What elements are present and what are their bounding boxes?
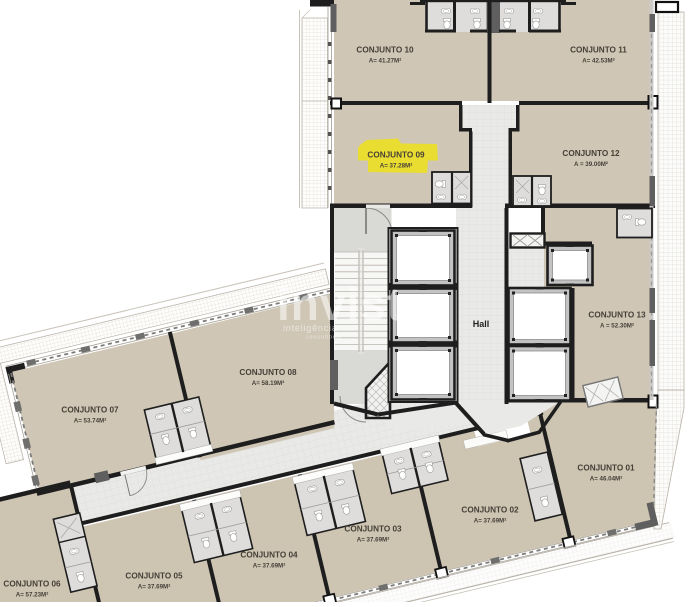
svg-text:A= 58.19M²: A= 58.19M² (252, 380, 285, 387)
svg-text:A= 42.53M²: A= 42.53M² (582, 58, 615, 65)
svg-text:CONJUNTO 03: CONJUNTO 03 (344, 525, 402, 534)
svg-text:A= 37.69M²: A= 37.69M² (474, 518, 507, 525)
svg-text:CONJUNTO 11: CONJUNTO 11 (570, 46, 627, 55)
svg-text:CONJUNTO 09: CONJUNTO 09 (367, 151, 425, 160)
svg-text:A= 57.23M²: A= 57.23M² (16, 592, 49, 599)
svg-text:inteligência: inteligência (283, 323, 338, 333)
svg-text:A= 41.27M²: A= 41.27M² (369, 58, 402, 65)
svg-text:A = 52.30M²: A = 52.30M² (600, 323, 634, 330)
svg-text:CONJUNTO 12: CONJUNTO 12 (562, 149, 620, 158)
svg-text:CONJUNTO 10: CONJUNTO 10 (356, 46, 414, 55)
svg-text:A= 37.69M²: A= 37.69M² (253, 563, 286, 570)
svg-text:CONJUNTO 06: CONJUNTO 06 (3, 580, 61, 589)
svg-text:consultoria: consultoria (306, 335, 342, 341)
svg-text:CONJUNTO 04: CONJUNTO 04 (240, 551, 298, 560)
svg-text:CONJUNTO 07: CONJUNTO 07 (61, 406, 119, 415)
svg-text:A= 37.28M²: A= 37.28M² (380, 163, 413, 170)
svg-text:A= 53.74M²: A= 53.74M² (74, 418, 107, 425)
svg-text:CONJUNTO 02: CONJUNTO 02 (461, 506, 519, 515)
svg-text:A = 39.00M²: A = 39.00M² (574, 161, 608, 168)
svg-text:Hall: Hall (473, 319, 490, 329)
svg-text:A= 37.69M²: A= 37.69M² (357, 537, 390, 544)
svg-text:A= 46.04M²: A= 46.04M² (590, 476, 623, 483)
svg-text:A= 37.69M²: A= 37.69M² (138, 584, 171, 591)
svg-text:CONJUNTO 01: CONJUNTO 01 (577, 464, 635, 473)
svg-text:CONJUNTO 08: CONJUNTO 08 (239, 368, 297, 377)
svg-text:CONJUNTO 05: CONJUNTO 05 (125, 572, 183, 581)
svg-text:CONJUNTO 13: CONJUNTO 13 (588, 311, 646, 320)
